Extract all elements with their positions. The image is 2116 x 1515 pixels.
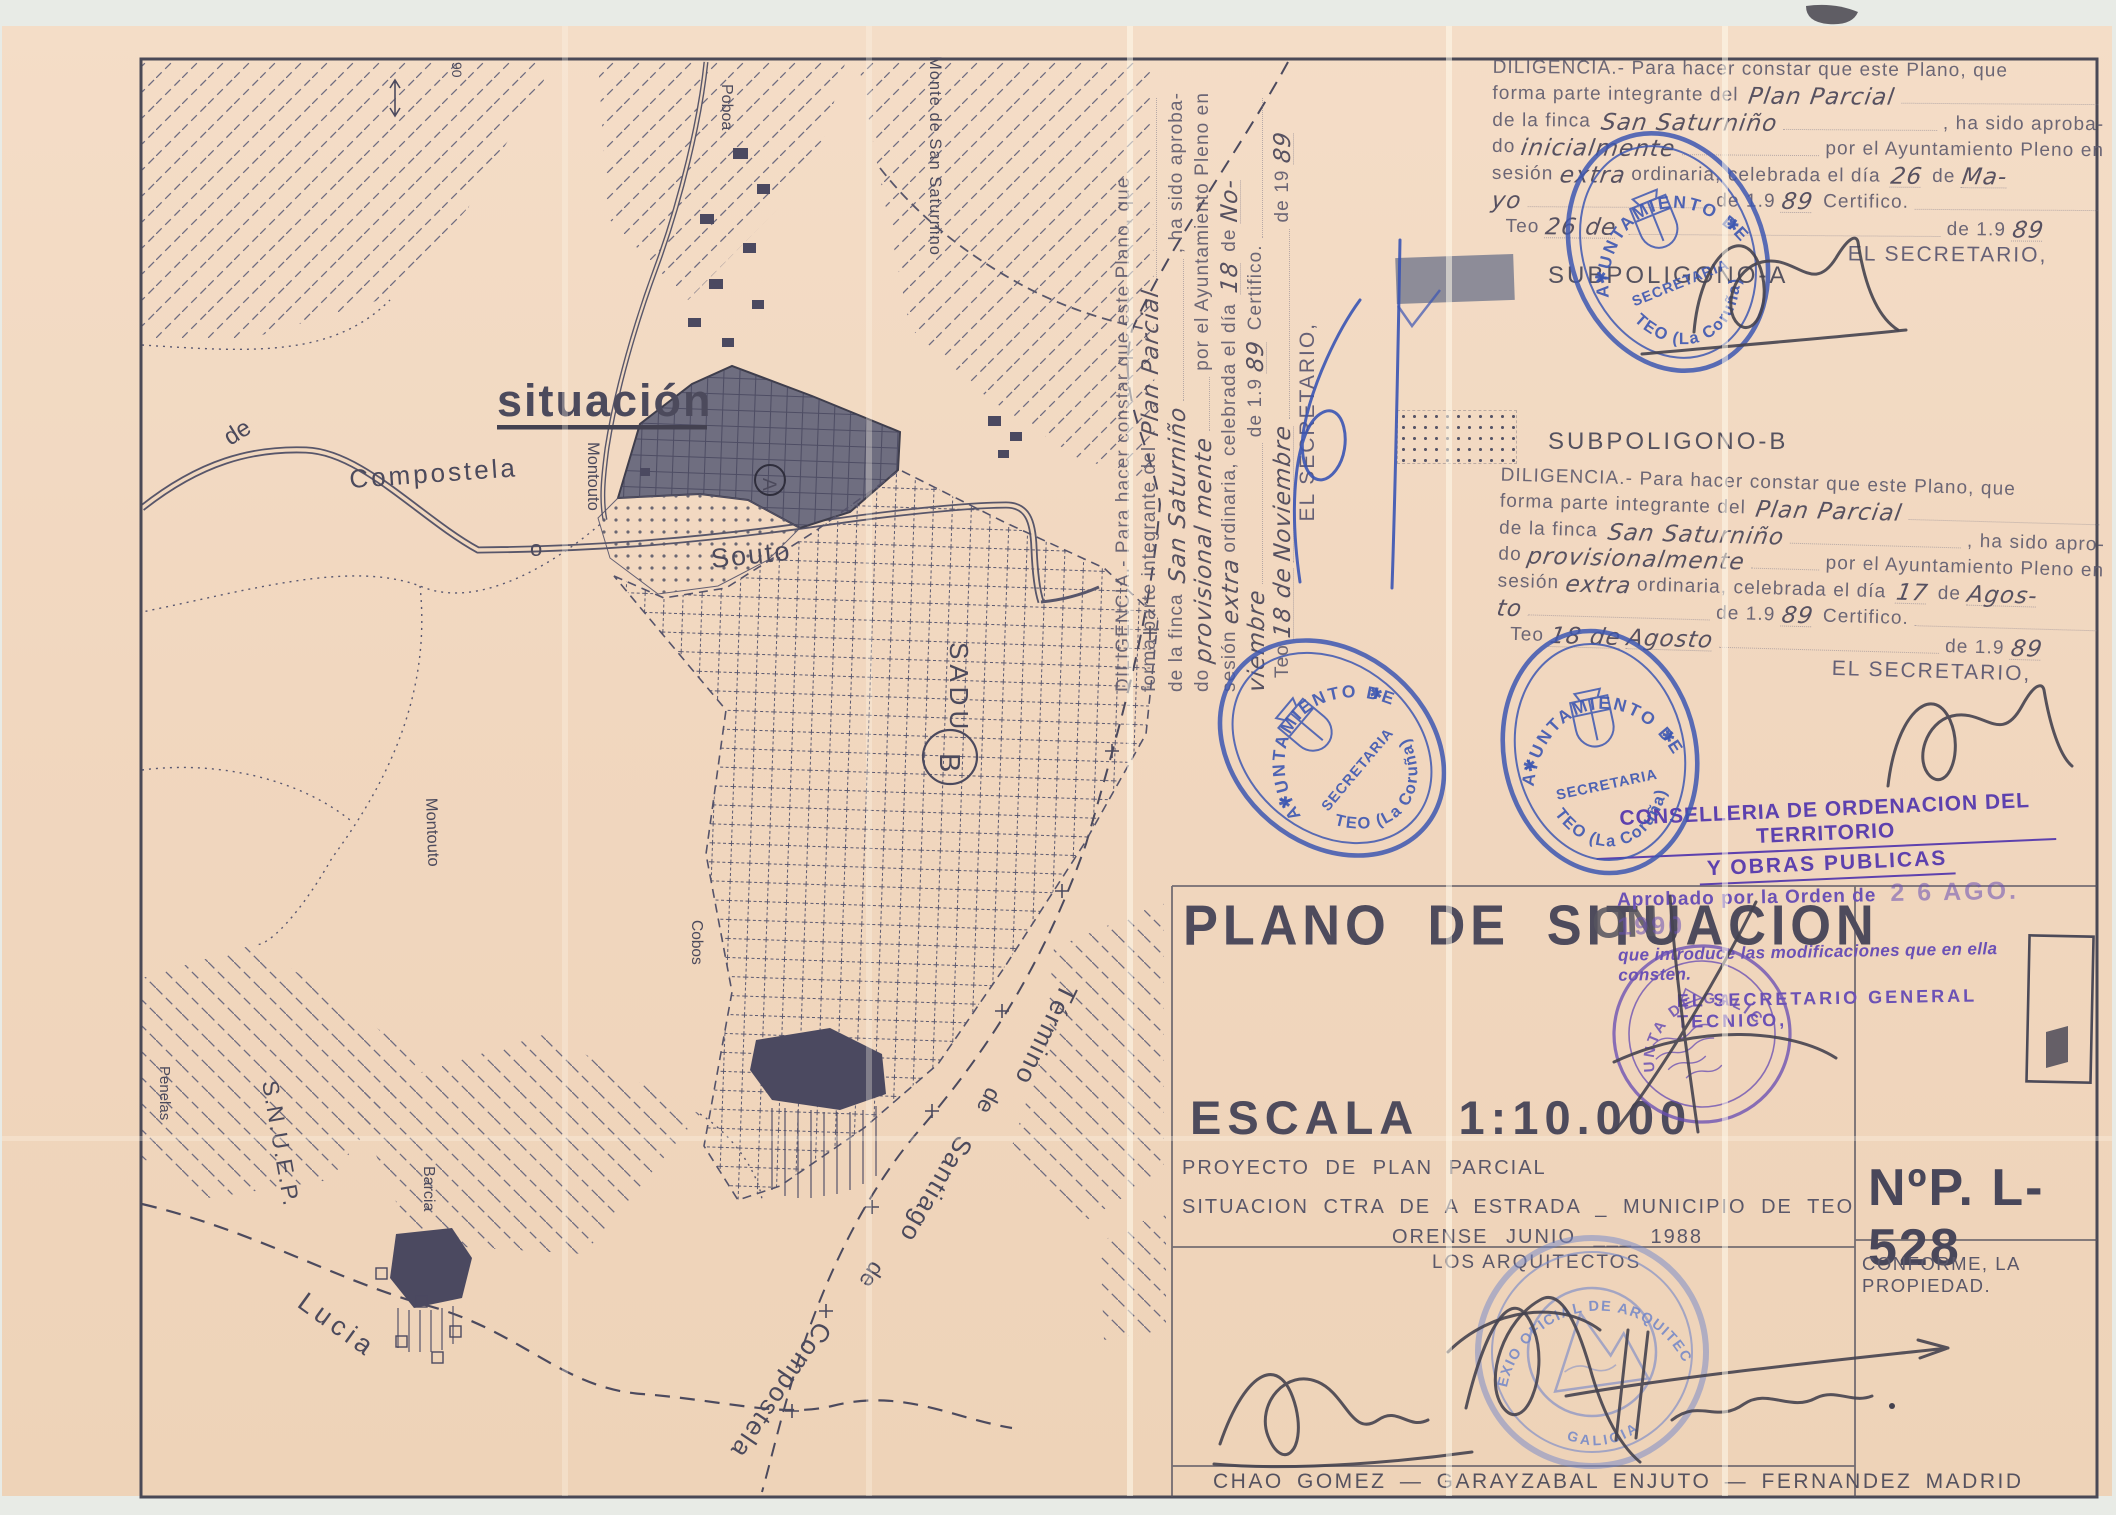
scan-smudge	[1806, 5, 1858, 24]
stamp-arquitectos-colegio: COLEXIO OFICIAL DE ARQUITECTOS GALICIA	[1463, 1223, 1721, 1481]
signature-architect-1-underline	[1214, 1452, 1472, 1467]
signature-side-flourish	[1392, 240, 1400, 588]
signature-dot	[1889, 1403, 1895, 1409]
blue-check-mark	[1398, 290, 1440, 326]
arquitectos-arc-bottom: GALICIA	[1563, 1417, 1644, 1453]
scanned-plan-document: situación de Compostela Montouto o Poboa…	[0, 0, 2116, 1515]
signature-architect-3-squiggle	[1672, 1395, 1872, 1420]
signature-over-xunta	[1614, 896, 1836, 1132]
drawn-seal-box	[2026, 935, 2093, 1082]
signature-architect-3	[1566, 1330, 1948, 1440]
signature-secretario-side	[1294, 300, 1360, 582]
stamps-overlay: AYUNTAMIENTO DE TEO (La Coruña) ✱ ✱ SECR…	[0, 0, 2116, 1515]
svg-text:COLEXIO OFICIAL DE ARQUITECTOS: COLEXIO OFICIAL DE ARQUITECTOS	[1485, 1285, 1696, 1391]
arquitectos-arc-top: COLEXIO OFICIAL DE ARQUITECTOS	[1485, 1285, 1696, 1391]
stamp-ayuntamiento-3	[1481, 613, 1720, 892]
signature-architect-1	[1220, 1375, 1428, 1455]
stamp-xunta-galicia: XUNTA DE GALICIA	[1589, 921, 1815, 1147]
svg-text:GALICIA: GALICIA	[1563, 1417, 1644, 1453]
stamp-ayuntamiento-1	[1533, 103, 1802, 401]
signature-secretario-2	[1888, 686, 2072, 786]
stamp-ayuntamiento-2	[1177, 596, 1487, 900]
